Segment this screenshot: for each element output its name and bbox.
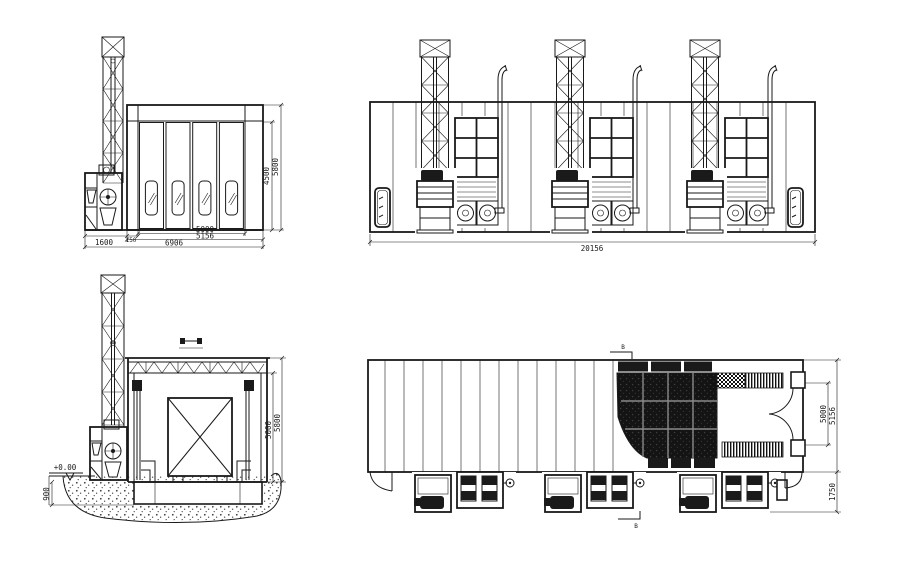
exhaust-tower-front xyxy=(102,37,124,183)
plan-panel-lines xyxy=(385,360,613,472)
booth-front xyxy=(127,105,263,230)
dim-pit-depth: 900 xyxy=(42,487,51,501)
booth-section xyxy=(125,358,270,482)
exhaust-tower-section xyxy=(101,275,125,427)
side-dimension: 20156 xyxy=(368,234,817,253)
burner-unit-front xyxy=(85,165,263,230)
burner-unit-section xyxy=(90,420,127,480)
dim-door-opening: 5000 xyxy=(819,404,828,423)
dim-total-length: 20156 xyxy=(581,244,604,253)
dim-total-height: 5800 xyxy=(271,157,280,176)
dim-plan-booth-width: 5156 xyxy=(828,406,837,425)
ground-pit xyxy=(49,473,281,522)
dim-service-depth: 1750 xyxy=(828,482,837,501)
dim-gap: 150 xyxy=(126,237,137,244)
cad-drawing-canvas: 1600 150 5000 5156 6906 4500 5800 xyxy=(0,0,900,565)
door-windows xyxy=(145,181,237,215)
level-text: +0.00 xyxy=(54,463,77,472)
front-elevation-view: 1600 150 5000 5156 6906 4500 5800 xyxy=(55,5,310,265)
floor-grating-zone xyxy=(617,362,717,469)
dim-inner-height: 5000 xyxy=(264,420,273,439)
plan-equipment xyxy=(412,472,802,518)
section-letter-top: B xyxy=(621,344,625,351)
section-mark-top: B xyxy=(610,344,632,359)
plan-view: B B 5000 5156 1750 xyxy=(355,335,855,565)
dim-door-height: 4500 xyxy=(262,166,271,185)
side-elevation-view: 20156 xyxy=(355,25,830,255)
dim-total-width: 6906 xyxy=(165,239,184,248)
left-swing-door xyxy=(370,472,392,491)
dim-booth-width: 5156 xyxy=(196,232,215,241)
dim-unit-width: 1600 xyxy=(95,238,114,247)
front-dimensions: 1600 150 5000 5156 6906 4500 5800 xyxy=(83,103,284,249)
section-letter-bottom: B xyxy=(634,523,638,530)
section-title-mark xyxy=(179,338,203,348)
section-view: +0.00 900 5000 5800 xyxy=(35,265,300,545)
dim-total-height-section: 5800 xyxy=(273,413,282,432)
